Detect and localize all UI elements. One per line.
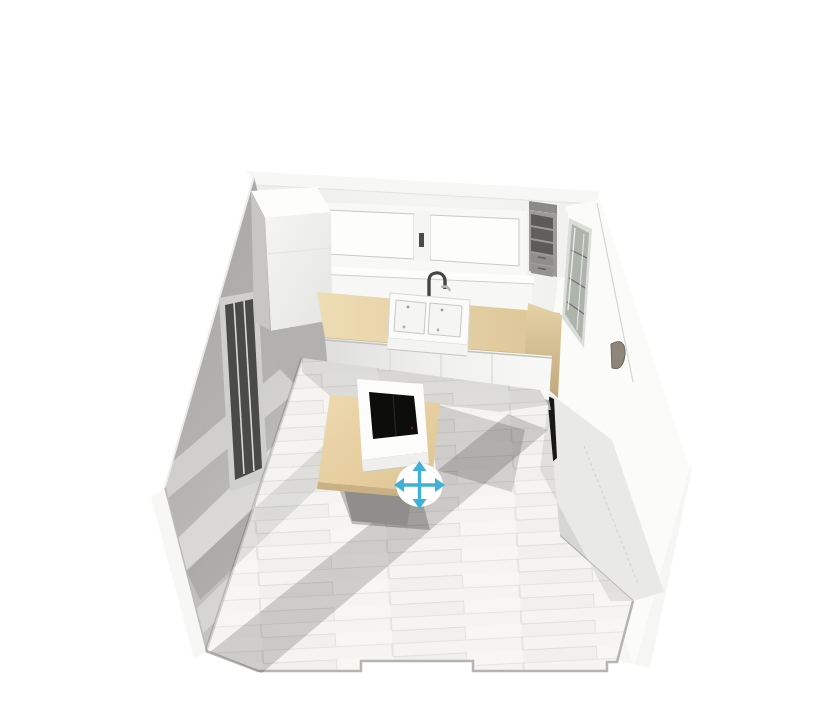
window-handle[interactable] xyxy=(419,233,424,247)
planner-3d-viewport[interactable] xyxy=(0,0,836,710)
sink-drain-dot xyxy=(407,306,410,309)
sink-drain-dot xyxy=(441,309,444,312)
farmhouse-sink[interactable] xyxy=(387,293,470,356)
sink-drain-dot xyxy=(437,329,440,332)
app-canvas xyxy=(0,0,836,710)
sink-bowl-right xyxy=(428,303,462,337)
window-glass-left xyxy=(327,210,414,259)
open-shelf-unit[interactable] xyxy=(529,201,568,278)
sink-bowl-left xyxy=(394,300,426,334)
window-glass-right xyxy=(430,215,519,266)
hob-control-dot xyxy=(411,427,413,429)
window-two-sash[interactable] xyxy=(312,202,534,284)
sink-drain-dot xyxy=(403,326,406,329)
